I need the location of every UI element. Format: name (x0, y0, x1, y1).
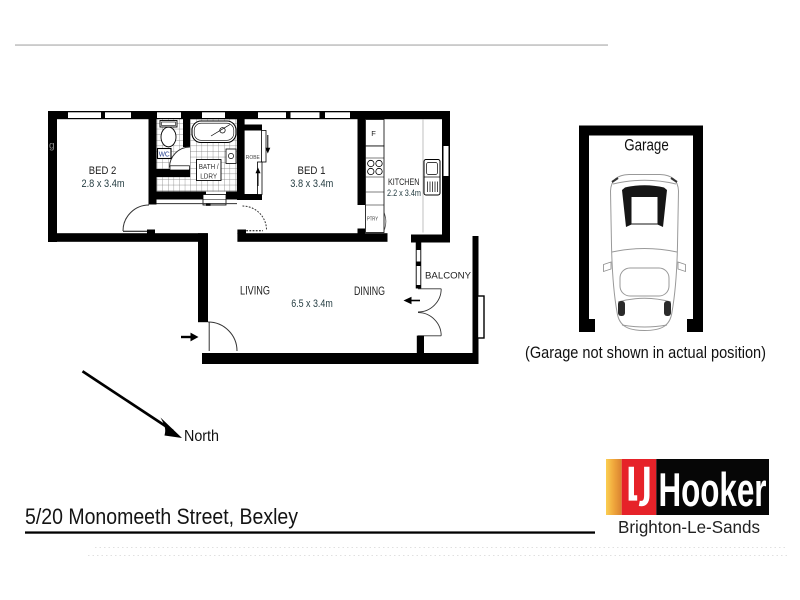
svg-text:BED 1: BED 1 (298, 165, 326, 177)
svg-text:Garage: Garage (624, 136, 669, 155)
svg-text:Brighton-Le-Sands: Brighton-Le-Sands (618, 517, 760, 537)
svg-text:LIVING: LIVING (240, 286, 270, 298)
svg-text:6.5 x 3.4m: 6.5 x 3.4m (291, 298, 333, 310)
svg-text:Hooker: Hooker (659, 464, 767, 517)
svg-text:BALCONY: BALCONY (425, 271, 472, 282)
svg-text:2.8 x 3.4m: 2.8 x 3.4m (82, 178, 125, 190)
svg-text:(Garage not shown in actual po: (Garage not shown in actual position) (525, 343, 766, 362)
svg-text:DINING: DINING (354, 286, 385, 298)
svg-text:KITCHEN: KITCHEN (388, 177, 420, 188)
svg-text:ROBE: ROBE (246, 155, 260, 161)
svg-text:3.8 x 3.4m: 3.8 x 3.4m (290, 178, 333, 190)
svg-text:PTRY: PTRY (367, 217, 379, 223)
svg-text:5/20 Monomeeth Street, Bexley: 5/20 Monomeeth Street, Bexley (25, 504, 298, 529)
svg-text:BED 2: BED 2 (89, 165, 117, 177)
svg-text:BATH /: BATH / (199, 162, 220, 171)
svg-text:g: g (49, 141, 55, 152)
svg-text:2.2 x 3.4m: 2.2 x 3.4m (387, 188, 421, 199)
svg-text:North: North (184, 428, 219, 445)
svg-text:WC: WC (159, 150, 171, 159)
svg-text:F: F (371, 129, 376, 138)
svg-text:LDRY: LDRY (200, 172, 217, 181)
